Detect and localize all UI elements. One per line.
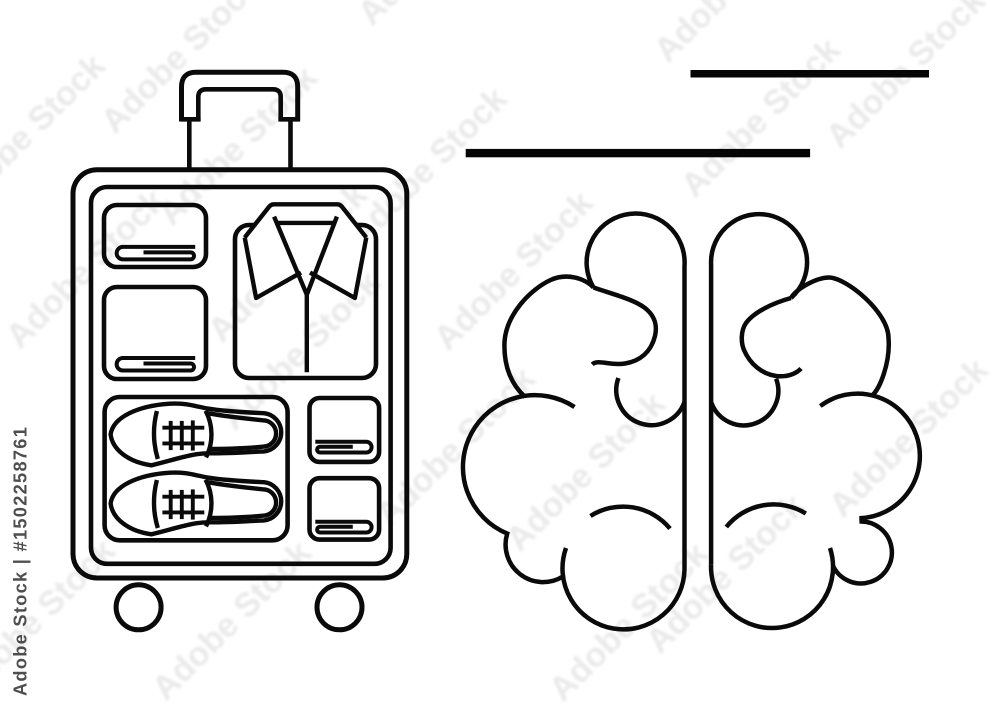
svg-text:Adobe Stock | #1502258761: Adobe Stock | #1502258761: [11, 426, 31, 696]
